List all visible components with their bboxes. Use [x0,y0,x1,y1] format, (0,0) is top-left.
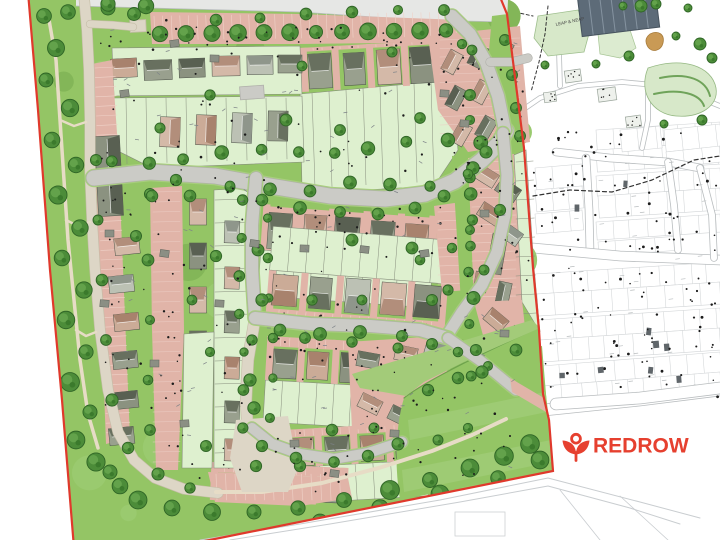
svg-text:REDROW: REDROW [593,435,689,458]
